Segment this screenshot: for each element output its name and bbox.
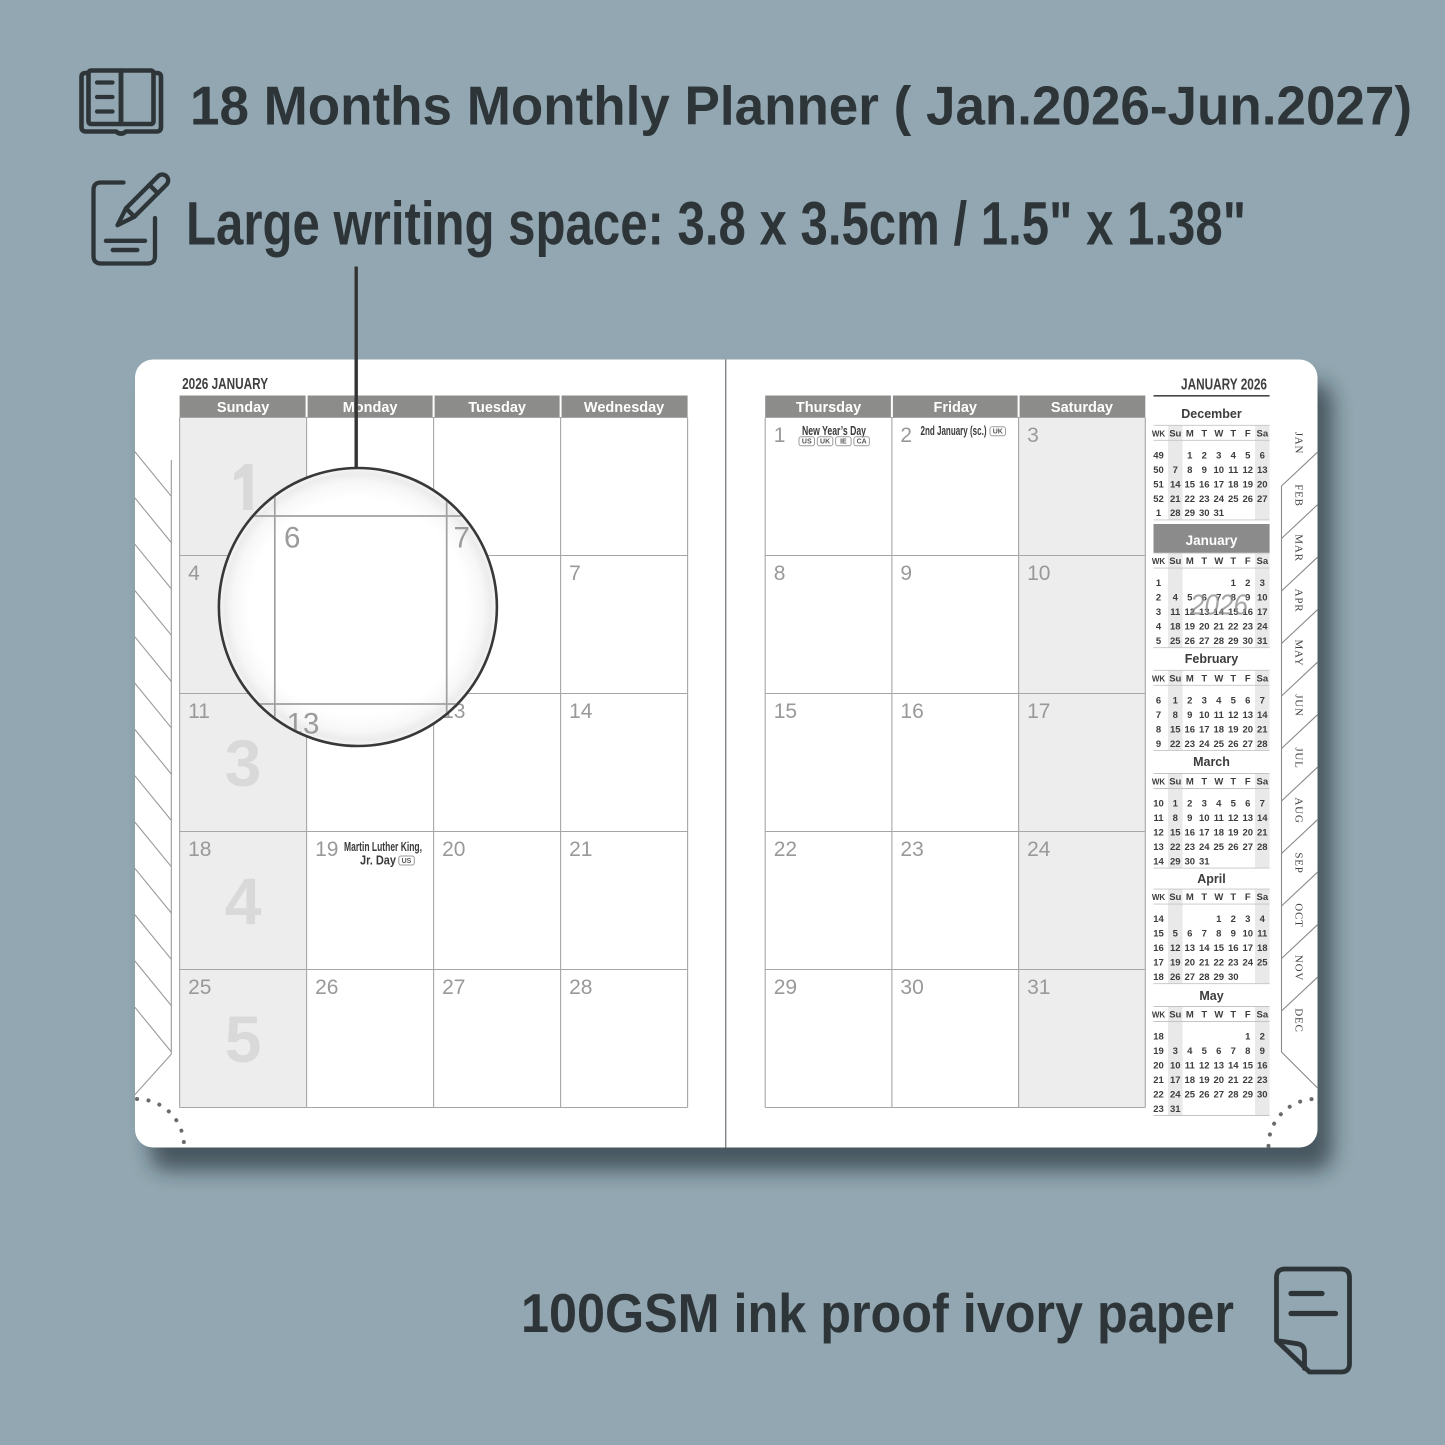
svg-text:UK: UK (993, 429, 1003, 436)
svg-text:11: 11 (1257, 929, 1268, 940)
svg-text:2: 2 (1187, 695, 1192, 706)
svg-text:January: January (1186, 533, 1238, 548)
svg-text:20: 20 (1243, 724, 1254, 735)
svg-text:February: February (1185, 652, 1239, 666)
svg-text:9: 9 (1260, 1046, 1265, 1057)
svg-text:Su: Su (1169, 777, 1181, 788)
svg-text:March: March (1193, 755, 1230, 769)
svg-text:1: 1 (1245, 1032, 1251, 1043)
svg-text:1: 1 (1156, 508, 1162, 519)
svg-text:OCT: OCT (1293, 903, 1305, 927)
svg-text:25: 25 (1214, 739, 1225, 750)
svg-text:21: 21 (1199, 958, 1210, 969)
svg-text:50: 50 (1153, 465, 1164, 476)
svg-text:14: 14 (1257, 710, 1268, 721)
svg-text:27: 27 (1243, 739, 1254, 750)
svg-text:4: 4 (188, 562, 200, 585)
svg-text:15: 15 (1185, 479, 1196, 490)
svg-text:18: 18 (188, 838, 211, 861)
svg-text:6: 6 (1260, 450, 1265, 461)
svg-text:23: 23 (1199, 494, 1210, 505)
svg-text:6: 6 (1156, 695, 1161, 706)
svg-text:6: 6 (1245, 695, 1250, 706)
svg-text:Monday: Monday (343, 400, 398, 416)
svg-text:29: 29 (1170, 856, 1181, 867)
svg-text:F: F (1245, 777, 1251, 788)
svg-text:FEB: FEB (1293, 484, 1305, 507)
svg-text:T: T (1230, 556, 1236, 567)
svg-text:25: 25 (1214, 842, 1225, 853)
svg-text:8: 8 (1245, 1046, 1250, 1057)
svg-text:T: T (1201, 777, 1207, 788)
svg-text:Sa: Sa (1256, 556, 1268, 567)
svg-text:Wednesday: Wednesday (584, 400, 664, 416)
svg-text:27: 27 (1243, 842, 1254, 853)
svg-text:1: 1 (1173, 695, 1179, 706)
svg-text:22: 22 (1185, 494, 1196, 505)
svg-text:3: 3 (1202, 799, 1207, 810)
svg-text:2: 2 (1260, 1032, 1265, 1043)
svg-text:2: 2 (1202, 450, 1207, 461)
svg-text:4: 4 (1216, 799, 1222, 810)
svg-text:JANUARY 2026: JANUARY 2026 (1181, 377, 1267, 394)
svg-text:M: M (1186, 673, 1194, 684)
svg-text:3: 3 (1260, 578, 1265, 589)
svg-text:M: M (1186, 428, 1194, 439)
svg-text:25: 25 (1170, 636, 1181, 647)
svg-text:11: 11 (1214, 813, 1225, 824)
svg-text:27: 27 (1257, 494, 1268, 505)
svg-text:20: 20 (1214, 1075, 1225, 1086)
svg-text:JUL: JUL (1293, 747, 1305, 768)
svg-text:2nd January (sc.): 2nd January (sc.) (921, 424, 987, 438)
svg-text:8: 8 (1216, 929, 1221, 940)
svg-text:6: 6 (1245, 799, 1250, 810)
svg-text:16: 16 (900, 700, 923, 723)
svg-text:10: 10 (1199, 710, 1210, 721)
svg-text:23: 23 (900, 838, 923, 861)
svg-text:5: 5 (1156, 636, 1162, 647)
svg-text:14: 14 (1170, 479, 1181, 490)
svg-text:New Year’s Day: New Year’s Day (802, 424, 866, 438)
svg-text:26: 26 (1185, 636, 1196, 647)
svg-text:30: 30 (1199, 508, 1210, 519)
svg-text:7: 7 (454, 522, 470, 555)
svg-text:18: 18 (1153, 972, 1164, 983)
svg-text:5: 5 (1231, 695, 1237, 706)
svg-text:11: 11 (1214, 710, 1225, 721)
svg-text:22: 22 (1170, 842, 1181, 853)
svg-text:25: 25 (188, 976, 211, 999)
svg-text:7: 7 (1260, 799, 1265, 810)
svg-text:21: 21 (569, 838, 592, 861)
svg-text:MAR: MAR (1293, 534, 1305, 561)
svg-text:Thursday: Thursday (796, 400, 861, 416)
svg-text:7: 7 (569, 562, 581, 585)
svg-text:T: T (1201, 892, 1207, 903)
svg-text:28: 28 (1199, 972, 1210, 983)
svg-text:8: 8 (1173, 710, 1178, 721)
svg-text:14: 14 (569, 700, 593, 723)
svg-text:NOV: NOV (1293, 955, 1305, 981)
svg-text:19: 19 (1228, 724, 1239, 735)
svg-text:Friday: Friday (933, 400, 977, 416)
svg-text:WK: WK (1152, 674, 1166, 683)
svg-text:16: 16 (1228, 943, 1239, 954)
svg-text:5: 5 (1231, 799, 1237, 810)
svg-text:US: US (402, 858, 412, 865)
svg-text:F: F (1245, 673, 1251, 684)
svg-text:10: 10 (1243, 929, 1254, 940)
svg-text:24: 24 (1257, 622, 1268, 633)
svg-text:April: April (1197, 872, 1225, 886)
svg-text:8: 8 (1156, 724, 1161, 735)
svg-text:30: 30 (1228, 972, 1239, 983)
svg-text:14: 14 (1257, 813, 1268, 824)
svg-text:13: 13 (1243, 710, 1254, 721)
svg-text:Sa: Sa (1256, 428, 1268, 439)
svg-text:12: 12 (1243, 465, 1254, 476)
svg-text:Sunday: Sunday (217, 400, 269, 416)
svg-text:4: 4 (1187, 1046, 1193, 1057)
svg-text:5: 5 (1202, 1046, 1208, 1057)
svg-text:W: W (1214, 892, 1223, 903)
svg-text:JUN: JUN (1293, 694, 1305, 717)
svg-text:SEP: SEP (1293, 852, 1305, 873)
svg-text:4: 4 (1156, 622, 1162, 633)
svg-text:13: 13 (1185, 943, 1196, 954)
svg-text:Su: Su (1169, 892, 1181, 903)
svg-text:24: 24 (1214, 494, 1225, 505)
svg-text:28: 28 (1228, 1089, 1239, 1100)
svg-text:Martin Luther King,: Martin Luther King, (344, 840, 422, 854)
svg-text:1: 1 (1156, 578, 1162, 589)
svg-text:4: 4 (1173, 593, 1179, 604)
svg-text:25: 25 (1185, 1089, 1196, 1100)
svg-text:Sa: Sa (1256, 1010, 1268, 1021)
svg-text:12: 12 (1228, 813, 1239, 824)
svg-text:APR: APR (1293, 589, 1305, 613)
svg-text:25: 25 (1257, 958, 1268, 969)
svg-text:19: 19 (315, 838, 338, 861)
svg-text:20: 20 (1199, 622, 1210, 633)
svg-text:15: 15 (774, 700, 797, 723)
svg-text:T: T (1230, 428, 1236, 439)
svg-text:23: 23 (1153, 1104, 1164, 1115)
svg-text:9: 9 (1187, 710, 1192, 721)
svg-text:21: 21 (1257, 724, 1268, 735)
svg-text:W: W (1214, 1010, 1223, 1021)
svg-text:18: 18 (1214, 828, 1225, 839)
svg-text:24: 24 (1199, 739, 1210, 750)
svg-text:24: 24 (1027, 838, 1051, 861)
svg-text:18: 18 (1170, 622, 1181, 633)
svg-text:13: 13 (1153, 842, 1164, 853)
svg-text:27: 27 (1214, 1089, 1225, 1100)
svg-text:18 Months Monthly Planner ( Ja: 18 Months Monthly Planner ( Jan.2026-Jun… (190, 75, 1412, 137)
svg-text:23: 23 (1243, 622, 1254, 633)
svg-text:W: W (1214, 777, 1223, 788)
svg-text:22: 22 (1153, 1089, 1164, 1100)
svg-text:30: 30 (1257, 1089, 1268, 1100)
svg-text:Su: Su (1169, 1010, 1181, 1021)
svg-text:14: 14 (1228, 1061, 1239, 1072)
svg-text:12: 12 (1199, 1061, 1210, 1072)
svg-text:May: May (1199, 989, 1223, 1003)
svg-text:WK: WK (1152, 893, 1166, 902)
svg-text:AUG: AUG (1293, 797, 1305, 823)
svg-text:23: 23 (1185, 842, 1196, 853)
svg-text:14: 14 (1153, 856, 1164, 867)
svg-text:Tuesday: Tuesday (468, 400, 526, 416)
svg-text:M: M (1186, 892, 1194, 903)
svg-text:9: 9 (1202, 465, 1207, 476)
svg-text:30: 30 (1185, 856, 1196, 867)
svg-text:51: 51 (1153, 479, 1164, 490)
svg-text:14: 14 (1153, 914, 1164, 925)
svg-text:2: 2 (1156, 593, 1161, 604)
svg-text:28: 28 (569, 976, 592, 999)
svg-text:20: 20 (1243, 828, 1254, 839)
svg-text:31: 31 (1027, 976, 1050, 999)
svg-text:21: 21 (1257, 828, 1268, 839)
svg-text:28: 28 (1214, 636, 1225, 647)
svg-text:28: 28 (1257, 842, 1268, 853)
svg-text:6: 6 (1187, 929, 1192, 940)
svg-text:100GSM ink proof ivory paper: 100GSM ink proof ivory paper (521, 1282, 1234, 1344)
svg-text:5: 5 (1173, 929, 1179, 940)
svg-text:49: 49 (1153, 450, 1164, 461)
svg-text:11: 11 (1170, 607, 1181, 618)
svg-text:T: T (1201, 673, 1207, 684)
svg-text:29: 29 (1214, 972, 1225, 983)
svg-text:26: 26 (1170, 972, 1181, 983)
svg-text:CA: CA (857, 439, 867, 446)
svg-text:2026 JANUARY: 2026 JANUARY (182, 376, 269, 393)
svg-text:W: W (1214, 673, 1223, 684)
svg-text:23: 23 (1228, 958, 1239, 969)
svg-text:4: 4 (1216, 695, 1222, 706)
svg-text:27: 27 (1185, 972, 1196, 983)
svg-text:WK: WK (1152, 429, 1166, 438)
svg-text:2: 2 (900, 424, 912, 447)
svg-text:5: 5 (1245, 450, 1251, 461)
svg-text:12: 12 (1228, 710, 1239, 721)
svg-text:Su: Su (1169, 556, 1181, 567)
svg-text:15: 15 (1170, 724, 1181, 735)
svg-text:17: 17 (1257, 607, 1268, 618)
svg-text:16: 16 (1185, 828, 1196, 839)
svg-text:22: 22 (774, 838, 797, 861)
svg-text:3: 3 (1202, 695, 1207, 706)
svg-text:1: 1 (1187, 450, 1193, 461)
svg-text:WK: WK (1152, 1011, 1166, 1020)
svg-text:22: 22 (1214, 958, 1225, 969)
svg-text:20: 20 (442, 838, 465, 861)
svg-text:15: 15 (1214, 943, 1225, 954)
svg-text:3: 3 (1027, 424, 1039, 447)
svg-text:3: 3 (1173, 1046, 1178, 1057)
svg-text:7: 7 (1260, 695, 1265, 706)
svg-text:27: 27 (442, 976, 465, 999)
svg-text:16: 16 (1185, 724, 1196, 735)
svg-text:29: 29 (774, 976, 797, 999)
svg-text:20: 20 (1185, 958, 1196, 969)
svg-text:20: 20 (1257, 479, 1268, 490)
svg-text:26: 26 (1199, 1089, 1210, 1100)
svg-text:23: 23 (1257, 1075, 1268, 1086)
svg-text:22: 22 (1228, 622, 1239, 633)
svg-text:UK: UK (820, 439, 830, 446)
svg-text:Sa: Sa (1256, 777, 1268, 788)
svg-text:7: 7 (1156, 710, 1161, 721)
svg-text:F: F (1245, 428, 1251, 439)
svg-text:W: W (1214, 428, 1223, 439)
svg-text:13: 13 (1243, 813, 1254, 824)
svg-text:T: T (1201, 1010, 1207, 1021)
svg-text:T: T (1230, 1010, 1236, 1021)
svg-text:1: 1 (1216, 914, 1222, 925)
svg-text:2: 2 (1187, 799, 1192, 810)
svg-text:31: 31 (1257, 636, 1268, 647)
svg-text:17: 17 (1243, 943, 1254, 954)
svg-text:12: 12 (1170, 943, 1181, 954)
svg-text:15: 15 (1243, 1061, 1254, 1072)
svg-text:3: 3 (1216, 450, 1221, 461)
svg-text:18: 18 (1214, 724, 1225, 735)
svg-text:7: 7 (1231, 1046, 1236, 1057)
svg-text:11: 11 (1185, 1061, 1196, 1072)
svg-text:26: 26 (315, 976, 338, 999)
svg-text:16: 16 (1153, 943, 1164, 954)
svg-text:11: 11 (1153, 813, 1164, 824)
svg-text:21: 21 (1170, 494, 1181, 505)
svg-text:1: 1 (774, 424, 786, 447)
svg-text:9: 9 (1231, 929, 1236, 940)
svg-text:31: 31 (1199, 856, 1210, 867)
svg-text:Saturday: Saturday (1051, 400, 1113, 416)
svg-text:7: 7 (1202, 929, 1207, 940)
svg-text:M: M (1186, 1010, 1194, 1021)
svg-text:24: 24 (1199, 842, 1210, 853)
svg-text:Sa: Sa (1256, 892, 1268, 903)
svg-text:3: 3 (225, 726, 262, 800)
svg-text:8: 8 (1173, 813, 1178, 824)
svg-text:6: 6 (284, 522, 300, 555)
svg-text:31: 31 (1170, 1104, 1181, 1115)
svg-text:IE: IE (840, 439, 847, 446)
svg-text:Jr. Day: Jr. Day (360, 854, 396, 868)
svg-text:21: 21 (1214, 622, 1225, 633)
svg-text:Su: Su (1169, 428, 1181, 439)
svg-text:M: M (1186, 556, 1194, 567)
svg-text:19: 19 (1228, 828, 1239, 839)
svg-text:8: 8 (1187, 465, 1192, 476)
svg-text:10: 10 (1257, 593, 1268, 604)
svg-text:3: 3 (1245, 914, 1250, 925)
svg-text:26: 26 (1228, 842, 1239, 853)
svg-text:Large writing space: 3.8 x 3.5: Large writing space: 3.8 x 3.5cm / 1.5" … (186, 190, 1246, 258)
svg-text:29: 29 (1243, 1089, 1254, 1100)
svg-text:29: 29 (1228, 636, 1239, 647)
svg-text:18: 18 (1228, 479, 1239, 490)
svg-text:T: T (1201, 428, 1207, 439)
svg-text:10: 10 (1199, 813, 1210, 824)
svg-text:18: 18 (1153, 1032, 1164, 1043)
svg-text:19: 19 (1153, 1046, 1164, 1057)
svg-text:9: 9 (1156, 739, 1161, 750)
svg-text:JAN: JAN (1293, 432, 1305, 455)
svg-text:17: 17 (1153, 958, 1164, 969)
svg-text:2: 2 (1245, 578, 1250, 589)
svg-text:December: December (1181, 407, 1242, 421)
svg-text:4: 4 (1260, 914, 1266, 925)
svg-text:3: 3 (1156, 607, 1161, 618)
svg-text:T: T (1230, 892, 1236, 903)
svg-text:8: 8 (774, 562, 786, 585)
svg-text:6: 6 (1216, 1046, 1221, 1057)
svg-text:13: 13 (1214, 1061, 1225, 1072)
svg-text:30: 30 (900, 976, 923, 999)
svg-text:17: 17 (1199, 828, 1210, 839)
svg-text:F: F (1245, 1010, 1251, 1021)
svg-text:31: 31 (1214, 508, 1225, 519)
svg-text:26: 26 (1243, 494, 1254, 505)
svg-text:Sa: Sa (1256, 673, 1268, 684)
svg-text:10: 10 (1153, 799, 1164, 810)
svg-text:24: 24 (1170, 1089, 1181, 1100)
svg-text:19: 19 (1170, 958, 1181, 969)
svg-text:M: M (1186, 777, 1194, 788)
svg-text:17: 17 (1027, 700, 1050, 723)
svg-text:52: 52 (1153, 494, 1164, 505)
svg-text:11: 11 (1228, 465, 1239, 476)
svg-text:13: 13 (1257, 465, 1268, 476)
svg-text:9: 9 (1187, 813, 1192, 824)
svg-text:25: 25 (1228, 494, 1239, 505)
svg-text:MAY: MAY (1293, 639, 1305, 666)
svg-text:27: 27 (1199, 636, 1210, 647)
svg-text:17: 17 (1214, 479, 1225, 490)
svg-text:WK: WK (1152, 557, 1166, 566)
svg-text:14: 14 (1199, 943, 1210, 954)
svg-text:7: 7 (1173, 465, 1178, 476)
svg-text:19: 19 (1185, 622, 1196, 633)
svg-text:4: 4 (1231, 450, 1237, 461)
svg-text:WK: WK (1152, 778, 1166, 787)
svg-text:1: 1 (1231, 578, 1237, 589)
svg-text:2026: 2026 (1189, 590, 1248, 622)
svg-text:28: 28 (1257, 739, 1268, 750)
svg-text:18: 18 (1185, 1075, 1196, 1086)
svg-text:19: 19 (1199, 1075, 1210, 1086)
svg-text:Su: Su (1169, 673, 1181, 684)
svg-text:26: 26 (1228, 739, 1239, 750)
svg-text:T: T (1230, 673, 1236, 684)
svg-text:21: 21 (1228, 1075, 1239, 1086)
svg-text:DEC: DEC (1293, 1008, 1305, 1032)
svg-text:T: T (1230, 777, 1236, 788)
svg-text:16: 16 (1199, 479, 1210, 490)
svg-text:24: 24 (1243, 958, 1254, 969)
svg-text:US: US (802, 439, 812, 446)
svg-text:19: 19 (1243, 479, 1254, 490)
svg-text:21: 21 (1153, 1075, 1164, 1086)
svg-text:2: 2 (1231, 914, 1236, 925)
svg-text:4: 4 (225, 864, 262, 938)
svg-text:T: T (1201, 556, 1207, 567)
svg-text:17: 17 (1170, 1075, 1181, 1086)
